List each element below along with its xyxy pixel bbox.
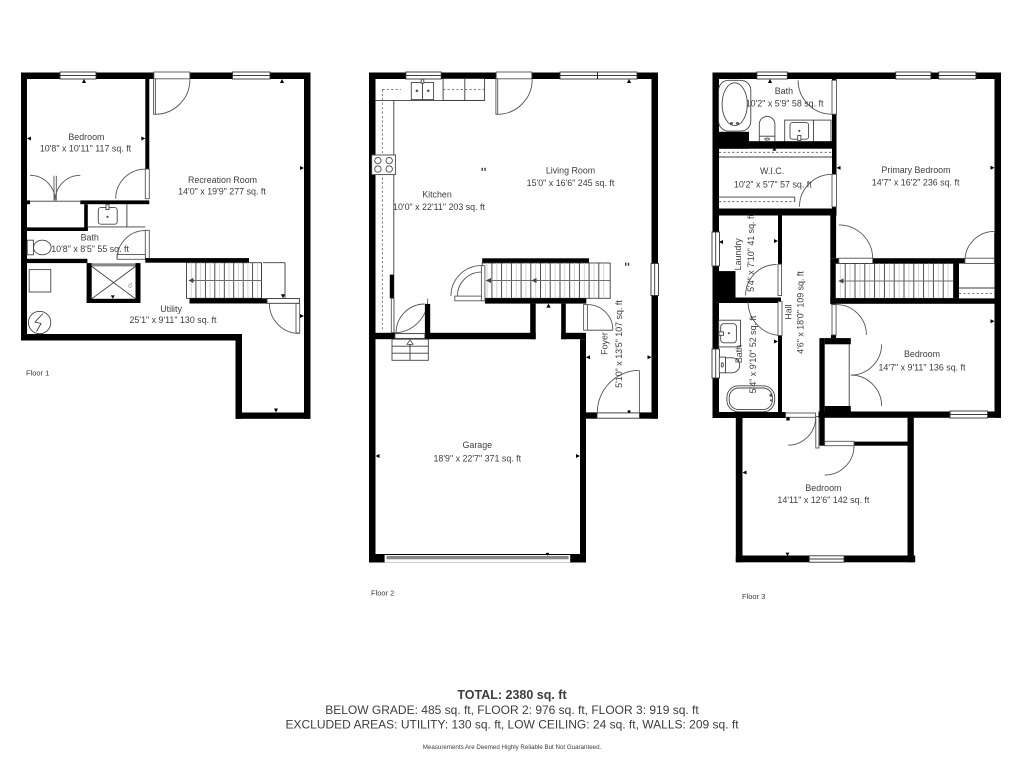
svg-text:15'0" x 16'6" 245 sq. ft: 15'0" x 16'6" 245 sq. ft bbox=[527, 178, 615, 188]
svg-text:Garage: Garage bbox=[462, 440, 492, 450]
svg-text:Laundry: Laundry bbox=[733, 238, 743, 271]
svg-text:Floor 3: Floor 3 bbox=[742, 592, 765, 601]
svg-text:Floor 1: Floor 1 bbox=[26, 369, 49, 378]
svg-text:Bedroom: Bedroom bbox=[904, 349, 940, 359]
svg-text:14'7" x 9'11" 136 sq. ft: 14'7" x 9'11" 136 sq. ft bbox=[879, 362, 967, 372]
svg-text:10'2" x 5'7" 57 sq. ft: 10'2" x 5'7" 57 sq. ft bbox=[734, 179, 812, 189]
svg-text:TOTAL: 2380 sq. ft: TOTAL: 2380 sq. ft bbox=[457, 688, 567, 702]
svg-text:10'8" x 10'11" 117 sq. ft: 10'8" x 10'11" 117 sq. ft bbox=[40, 144, 132, 154]
svg-text:Bath: Bath bbox=[775, 86, 793, 96]
svg-text:10'0" x 22'11" 203 sq. ft: 10'0" x 22'11" 203 sq. ft bbox=[393, 202, 485, 212]
svg-text:Bedroom: Bedroom bbox=[68, 132, 104, 142]
svg-text:14'11" x 12'6" 142 sq. ft: 14'11" x 12'6" 142 sq. ft bbox=[777, 495, 869, 505]
svg-text:Floor 2: Floor 2 bbox=[371, 589, 394, 598]
svg-text:Utility: Utility bbox=[160, 304, 182, 314]
svg-text:5'4" x 7'10" 41 sq. ft: 5'4" x 7'10" 41 sq. ft bbox=[746, 214, 756, 292]
svg-text:Primary Bedroom: Primary Bedroom bbox=[881, 165, 950, 175]
svg-text:5'4" x 9'10" 52 sq. ft: 5'4" x 9'10" 52 sq. ft bbox=[748, 315, 758, 393]
svg-text:25'1" x 9'11" 130 sq. ft: 25'1" x 9'11" 130 sq. ft bbox=[130, 315, 218, 325]
svg-text:10'8" x 8'5" 55 sq. ft: 10'8" x 8'5" 55 sq. ft bbox=[51, 244, 129, 254]
svg-text:4'6" x 18'0" 109 sq. ft: 4'6" x 18'0" 109 sq. ft bbox=[795, 271, 805, 354]
svg-text:14'7" x 16'2" 236 sq. ft: 14'7" x 16'2" 236 sq. ft bbox=[872, 177, 960, 187]
svg-text:Bedroom: Bedroom bbox=[805, 483, 841, 493]
svg-text:Hall: Hall bbox=[784, 304, 794, 319]
svg-text:Bath: Bath bbox=[734, 345, 744, 363]
svg-text:Recreation Room: Recreation Room bbox=[188, 175, 257, 185]
svg-text:10'2" x 5'9" 58 sq. ft: 10'2" x 5'9" 58 sq. ft bbox=[746, 98, 824, 108]
svg-text:Measurements Are Deemed Highly: Measurements Are Deemed Highly Reliable … bbox=[423, 744, 602, 751]
svg-text:EXCLUDED AREAS: UTILITY: 130 s: EXCLUDED AREAS: UTILITY: 130 sq. ft, LOW… bbox=[285, 718, 739, 732]
svg-text:14'0" x 19'9" 277 sq. ft: 14'0" x 19'9" 277 sq. ft bbox=[178, 187, 266, 197]
svg-text:Kitchen: Kitchen bbox=[422, 190, 452, 200]
svg-text:Bath: Bath bbox=[81, 233, 99, 243]
svg-text:18'9" x 22'7" 371 sq. ft: 18'9" x 22'7" 371 sq. ft bbox=[433, 454, 521, 464]
svg-text:CL: CL bbox=[128, 282, 133, 288]
svg-text:Foyer: Foyer bbox=[600, 332, 610, 355]
svg-text:5'10" x 13'5" 107 sq. ft: 5'10" x 13'5" 107 sq. ft bbox=[614, 300, 624, 388]
svg-text:W.I.C.: W.I.C. bbox=[760, 166, 784, 176]
svg-text:BELOW GRADE: 485 sq. ft, FLOOR: BELOW GRADE: 485 sq. ft, FLOOR 2: 976 sq… bbox=[325, 703, 699, 717]
svg-text:Living Room: Living Room bbox=[546, 166, 595, 176]
